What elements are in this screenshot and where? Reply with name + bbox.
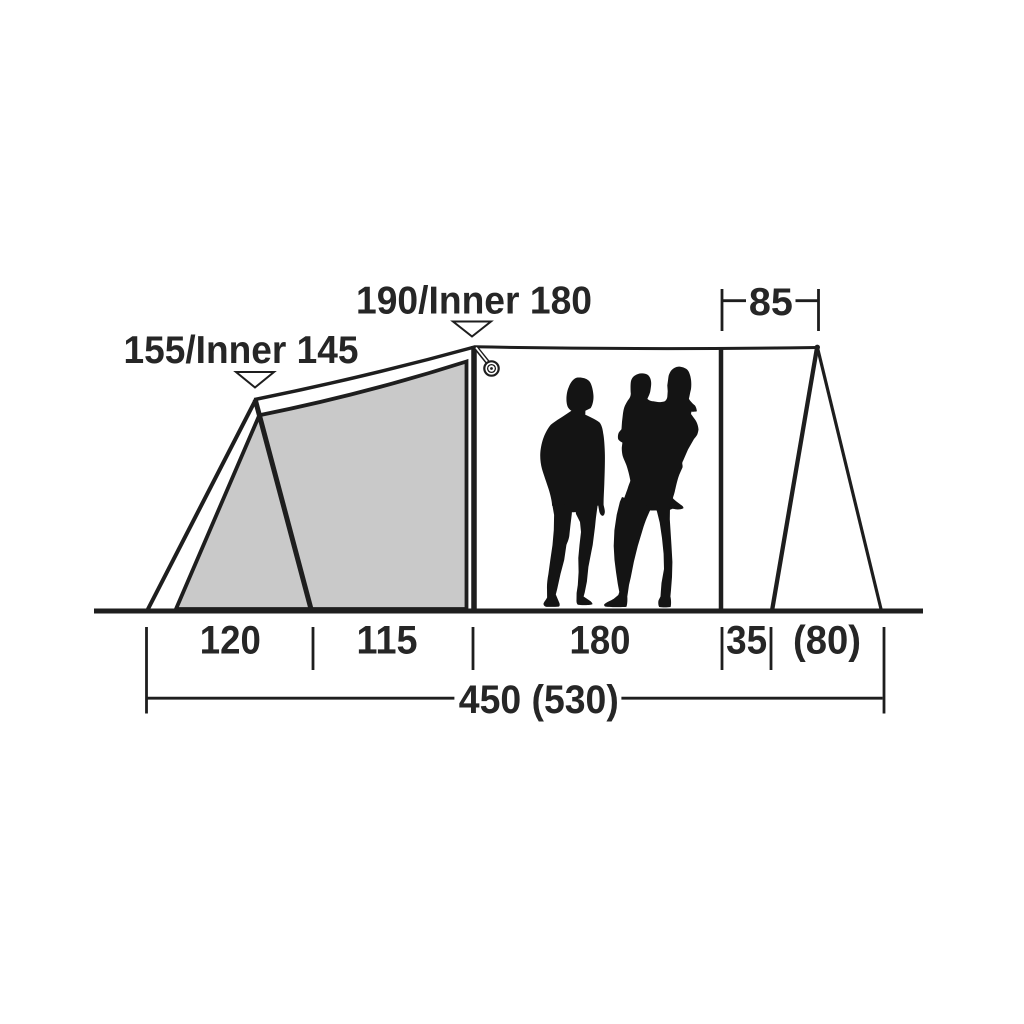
- svg-text:155/Inner 145: 155/Inner 145: [124, 329, 359, 372]
- svg-text:85: 85: [749, 281, 793, 324]
- svg-text:115: 115: [357, 618, 418, 662]
- svg-text:190/Inner 180: 190/Inner 180: [356, 280, 592, 323]
- svg-text:(80): (80): [793, 618, 861, 662]
- svg-text:35: 35: [726, 618, 767, 662]
- svg-text:450 (530): 450 (530): [459, 678, 619, 722]
- svg-text:180: 180: [570, 618, 631, 662]
- svg-text:120: 120: [200, 618, 261, 662]
